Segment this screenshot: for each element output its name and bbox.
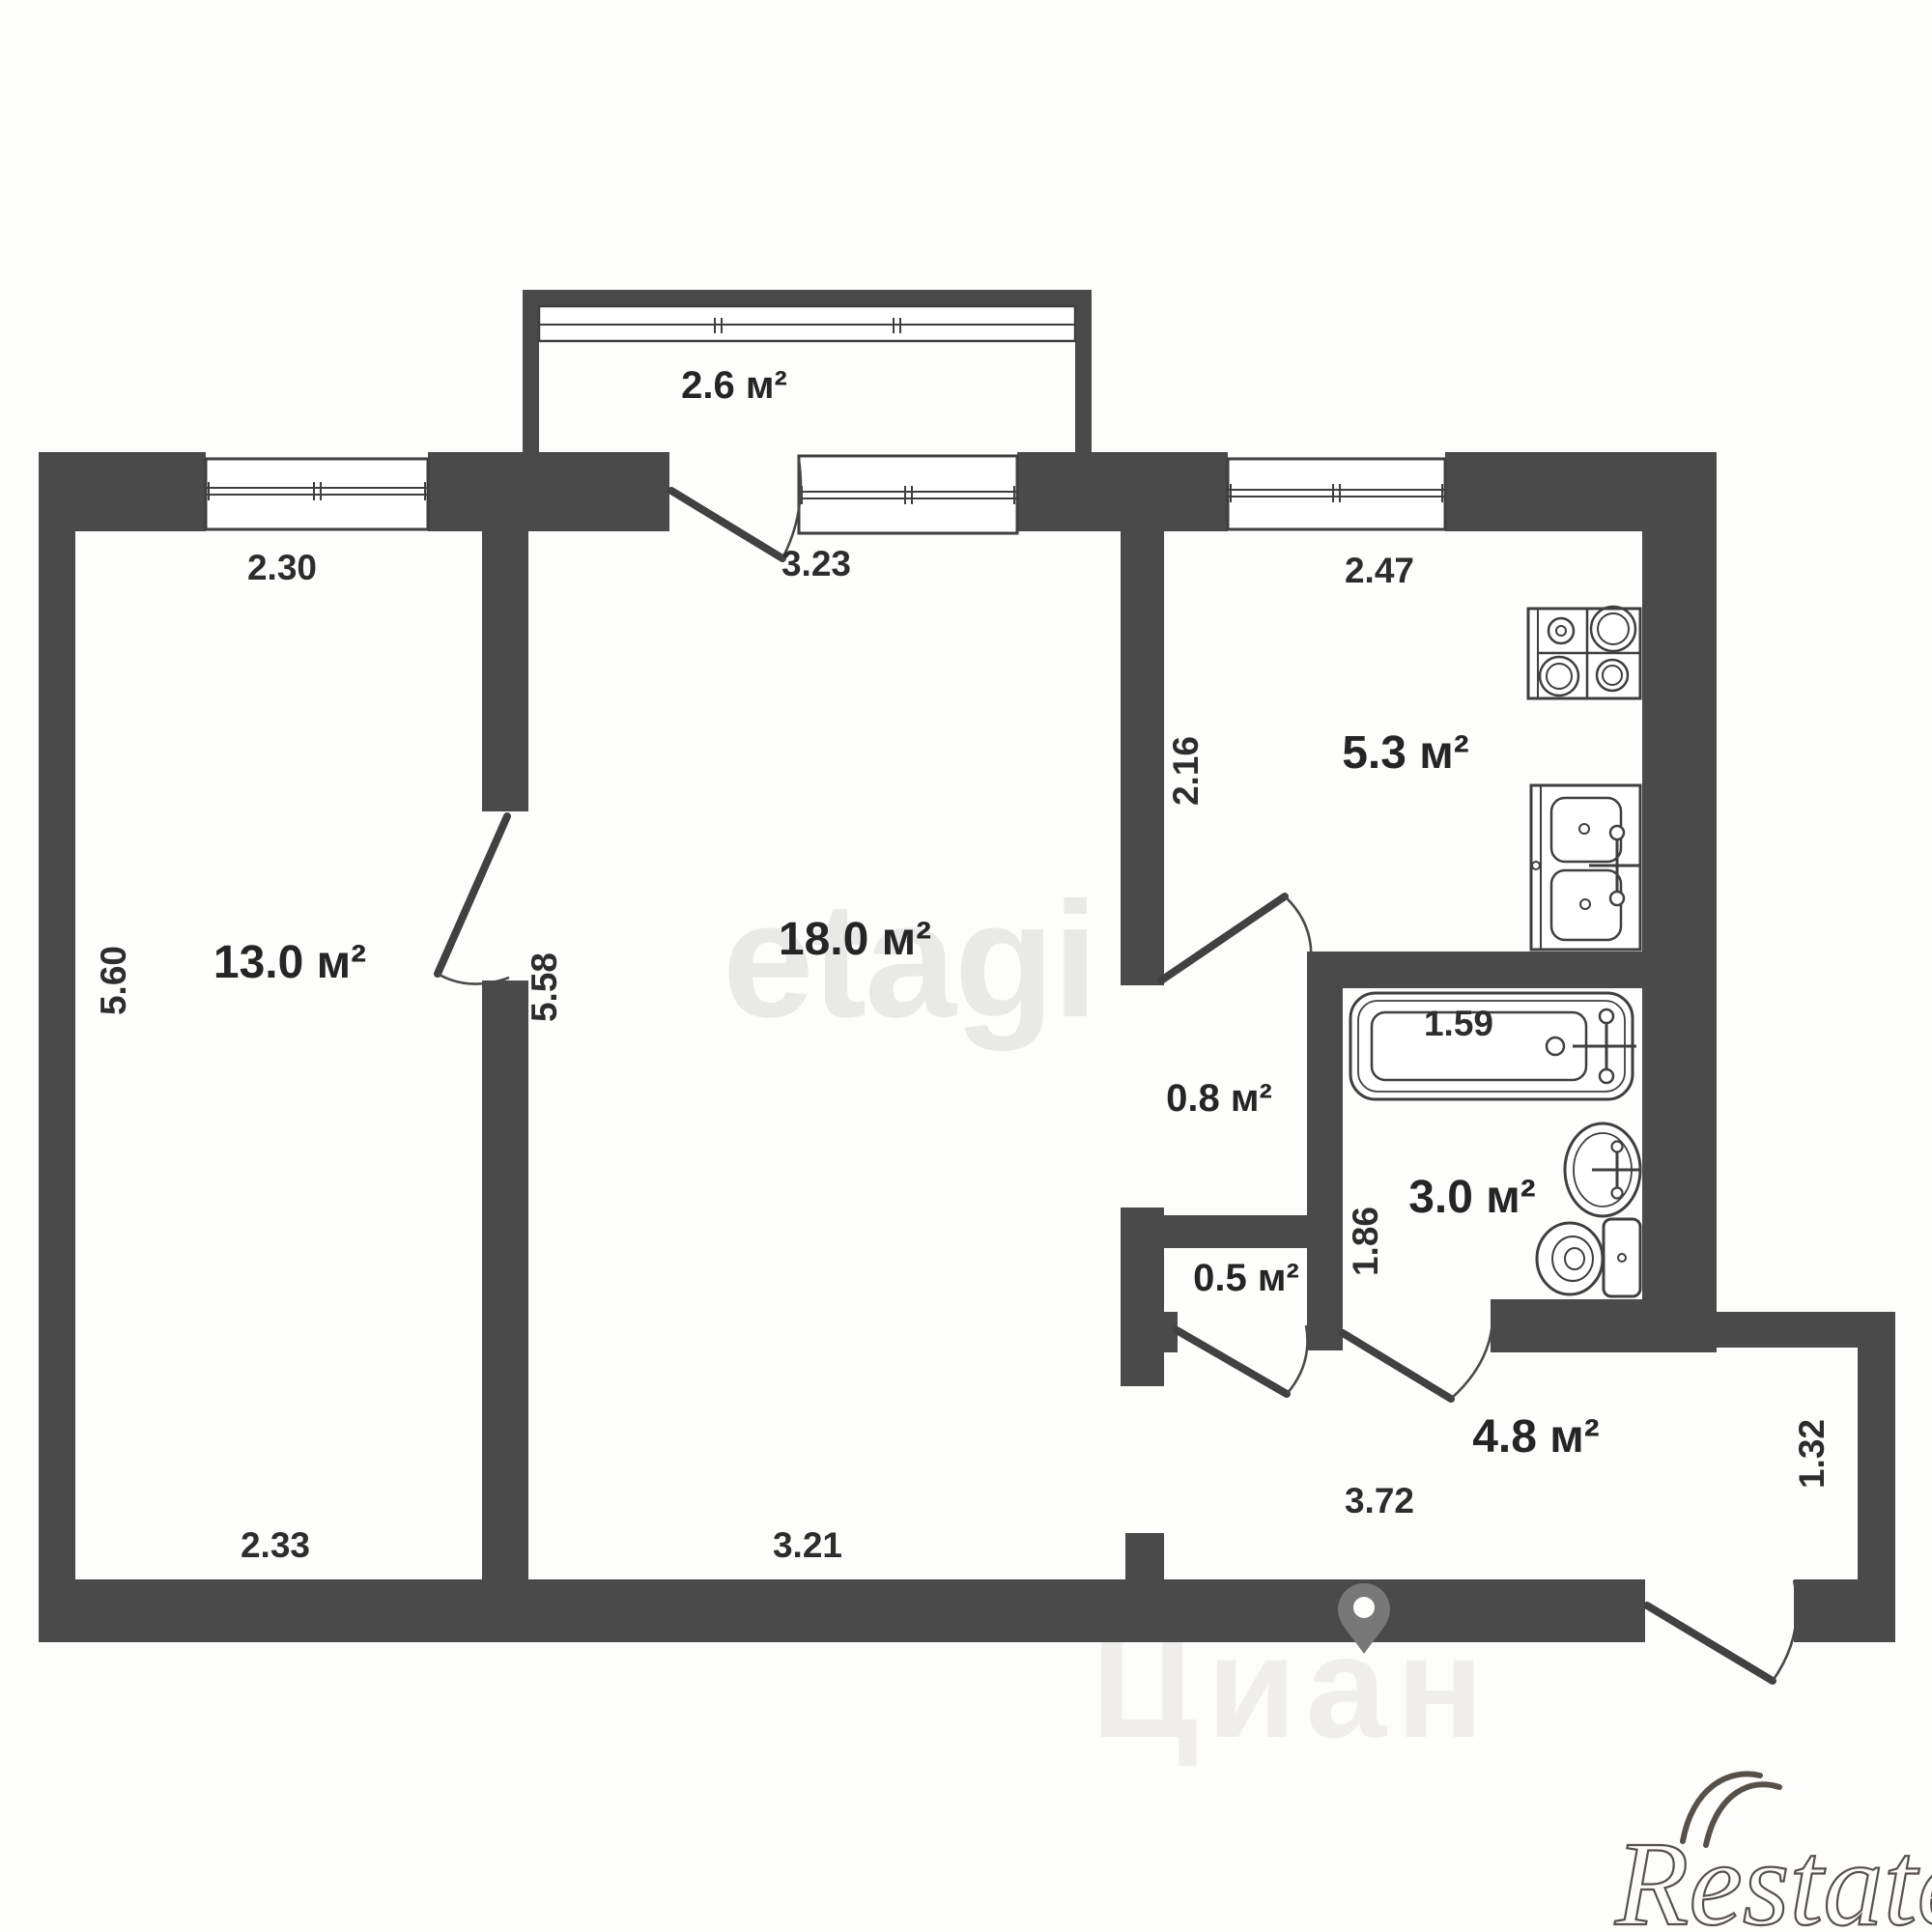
exterior-wall-bottom xyxy=(39,1579,1645,1642)
floor-plan: etagi Циан xyxy=(0,0,1932,1932)
exterior-wall-bottom-corner xyxy=(1794,1579,1895,1642)
closet-area-label: 0.5 м² xyxy=(1193,1257,1299,1299)
restate-watermark: Restate xyxy=(1614,1774,1932,1932)
bedroom-area-label: 13.0 м² xyxy=(213,937,366,988)
partition-living-kitchen xyxy=(1121,531,1164,985)
restate-logo-text: Restate xyxy=(1614,1818,1932,1932)
partition-closet-top xyxy=(1164,1215,1307,1248)
partition-living-hall-stub xyxy=(1125,1533,1164,1579)
dim-living-left: 5.58 xyxy=(525,952,564,1022)
partition-bathroom-bottom xyxy=(1491,1299,1717,1352)
inner-hallway-area-label: 0.8 м² xyxy=(1166,1077,1272,1120)
dim-bedroom-left: 5.60 xyxy=(94,946,133,1015)
kitchen-window xyxy=(1228,459,1445,529)
partition-bedroom-living-upper xyxy=(482,531,528,811)
kitchen-door xyxy=(1161,896,1311,980)
hall-wall-top xyxy=(1717,1312,1895,1348)
bathroom-area-label: 3.0 м² xyxy=(1408,1172,1536,1223)
bathroom-door xyxy=(1343,1321,1492,1399)
dim-bedroom-bottom: 2.33 xyxy=(241,1525,310,1565)
exterior-wall-top-3 xyxy=(1017,452,1228,531)
partition-bedroom-living-lower xyxy=(482,980,528,1579)
exterior-wall-right xyxy=(1642,452,1717,1312)
dim-living-top: 3.23 xyxy=(781,544,851,583)
balcony-area-label: 2.6 м² xyxy=(681,364,787,407)
partition-bathroom-top xyxy=(1307,952,1642,988)
balcony-wall-right xyxy=(1075,290,1092,452)
toilet-icon xyxy=(1537,1219,1640,1296)
stove-icon xyxy=(1528,607,1640,698)
balcony-window-band xyxy=(539,306,1075,341)
dim-kitchen-top: 2.47 xyxy=(1345,551,1414,590)
bedroom-window xyxy=(206,459,428,529)
partition-bathroom-left xyxy=(1307,952,1343,1350)
entrance-hall-area-label: 4.8 м² xyxy=(1472,1411,1600,1463)
exterior-wall-top-2 xyxy=(428,452,669,531)
kitchen-area-label: 5.3 м² xyxy=(1342,727,1469,779)
dim-bathroom-left: 1.86 xyxy=(1346,1207,1385,1276)
partition-closet-left xyxy=(1121,1207,1164,1386)
washbasin-icon xyxy=(1565,1123,1640,1216)
living-room-area-label: 18.0 м² xyxy=(779,914,931,965)
dim-hall-right: 1.32 xyxy=(1792,1419,1832,1489)
dim-living-bottom: 3.21 xyxy=(773,1525,842,1565)
exterior-wall-top-1 xyxy=(39,452,206,531)
dim-bathtub: 1.59 xyxy=(1424,1004,1493,1043)
bedroom-door xyxy=(438,816,509,984)
kitchen-sink-icon xyxy=(1531,785,1640,950)
living-room-window xyxy=(799,456,1017,533)
hall-wall-right xyxy=(1858,1348,1895,1579)
entrance-door xyxy=(1647,1580,1797,1681)
balcony-wall-top xyxy=(523,290,1092,306)
balcony-wall-left xyxy=(523,290,539,452)
dim-hall-bottom: 3.72 xyxy=(1345,1481,1414,1520)
exterior-wall-left xyxy=(39,452,75,1642)
dim-bedroom-top: 2.30 xyxy=(247,548,317,587)
windows xyxy=(206,306,1445,533)
dim-kitchen-left: 2.16 xyxy=(1166,736,1206,806)
closet-door xyxy=(1177,1325,1307,1394)
